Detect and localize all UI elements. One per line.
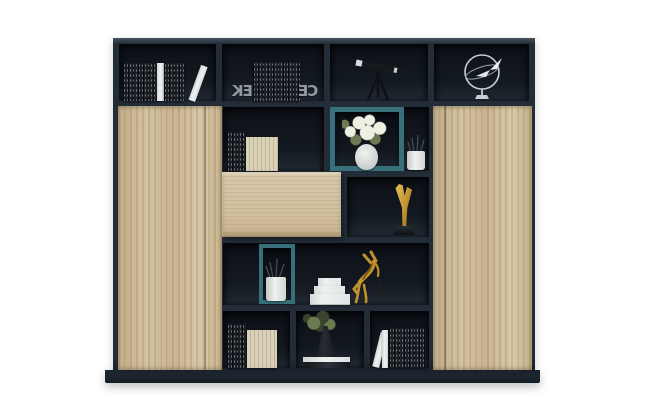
book-row bbox=[389, 328, 426, 368]
book-row-cream bbox=[246, 137, 278, 171]
flower-vase bbox=[355, 144, 378, 170]
white-book-stack-bottom bbox=[310, 294, 350, 305]
plant-foliage bbox=[303, 310, 339, 334]
pencil-twigs-icon bbox=[406, 133, 428, 153]
trophy-cell bbox=[347, 177, 429, 237]
airplane-orbit-icon bbox=[456, 50, 508, 102]
pencil-cup bbox=[266, 277, 286, 301]
book-stack bbox=[227, 324, 246, 368]
trophy-base bbox=[394, 226, 414, 235]
left-cabinet-door bbox=[118, 106, 222, 370]
book-flat-dark bbox=[305, 362, 350, 368]
bookend-letters-right: CE bbox=[299, 82, 318, 100]
flower-bouquet bbox=[342, 114, 388, 148]
bookend-letters-left: EK bbox=[233, 82, 253, 100]
book-white bbox=[382, 330, 388, 368]
cabinet-plinth bbox=[105, 370, 540, 383]
door-seam bbox=[204, 106, 206, 370]
book-white bbox=[157, 63, 164, 101]
pencil-twigs-icon bbox=[263, 256, 289, 278]
right-cabinet-door bbox=[433, 106, 532, 370]
horse-figurine-icon bbox=[345, 249, 385, 304]
book-stack bbox=[253, 62, 300, 101]
book-row-cream bbox=[247, 330, 277, 368]
telescope-icon bbox=[350, 50, 412, 102]
book-stack bbox=[227, 132, 245, 171]
book-row bbox=[123, 63, 157, 101]
door-seam bbox=[444, 106, 446, 370]
book-row bbox=[164, 63, 184, 101]
product-photo-stage: EK CE bbox=[0, 0, 670, 420]
drawer-front bbox=[222, 172, 341, 237]
pencil-cup bbox=[407, 151, 425, 170]
